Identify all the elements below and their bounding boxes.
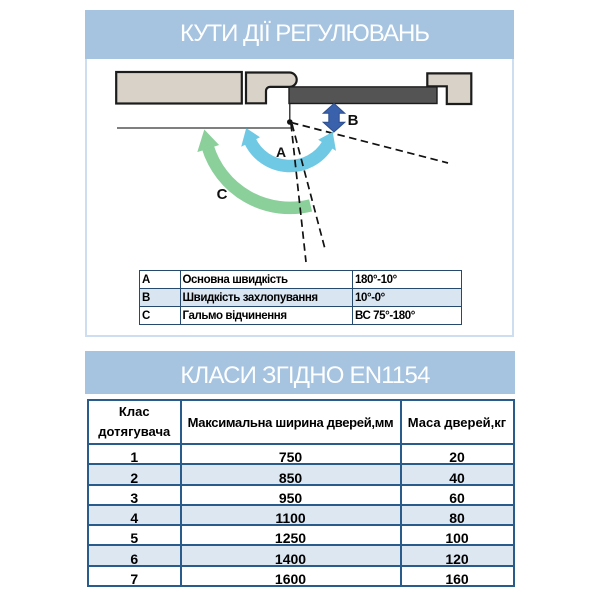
svg-text:A: A	[276, 144, 286, 160]
svg-text:C: C	[217, 186, 228, 203]
svg-text:B: B	[348, 112, 359, 129]
